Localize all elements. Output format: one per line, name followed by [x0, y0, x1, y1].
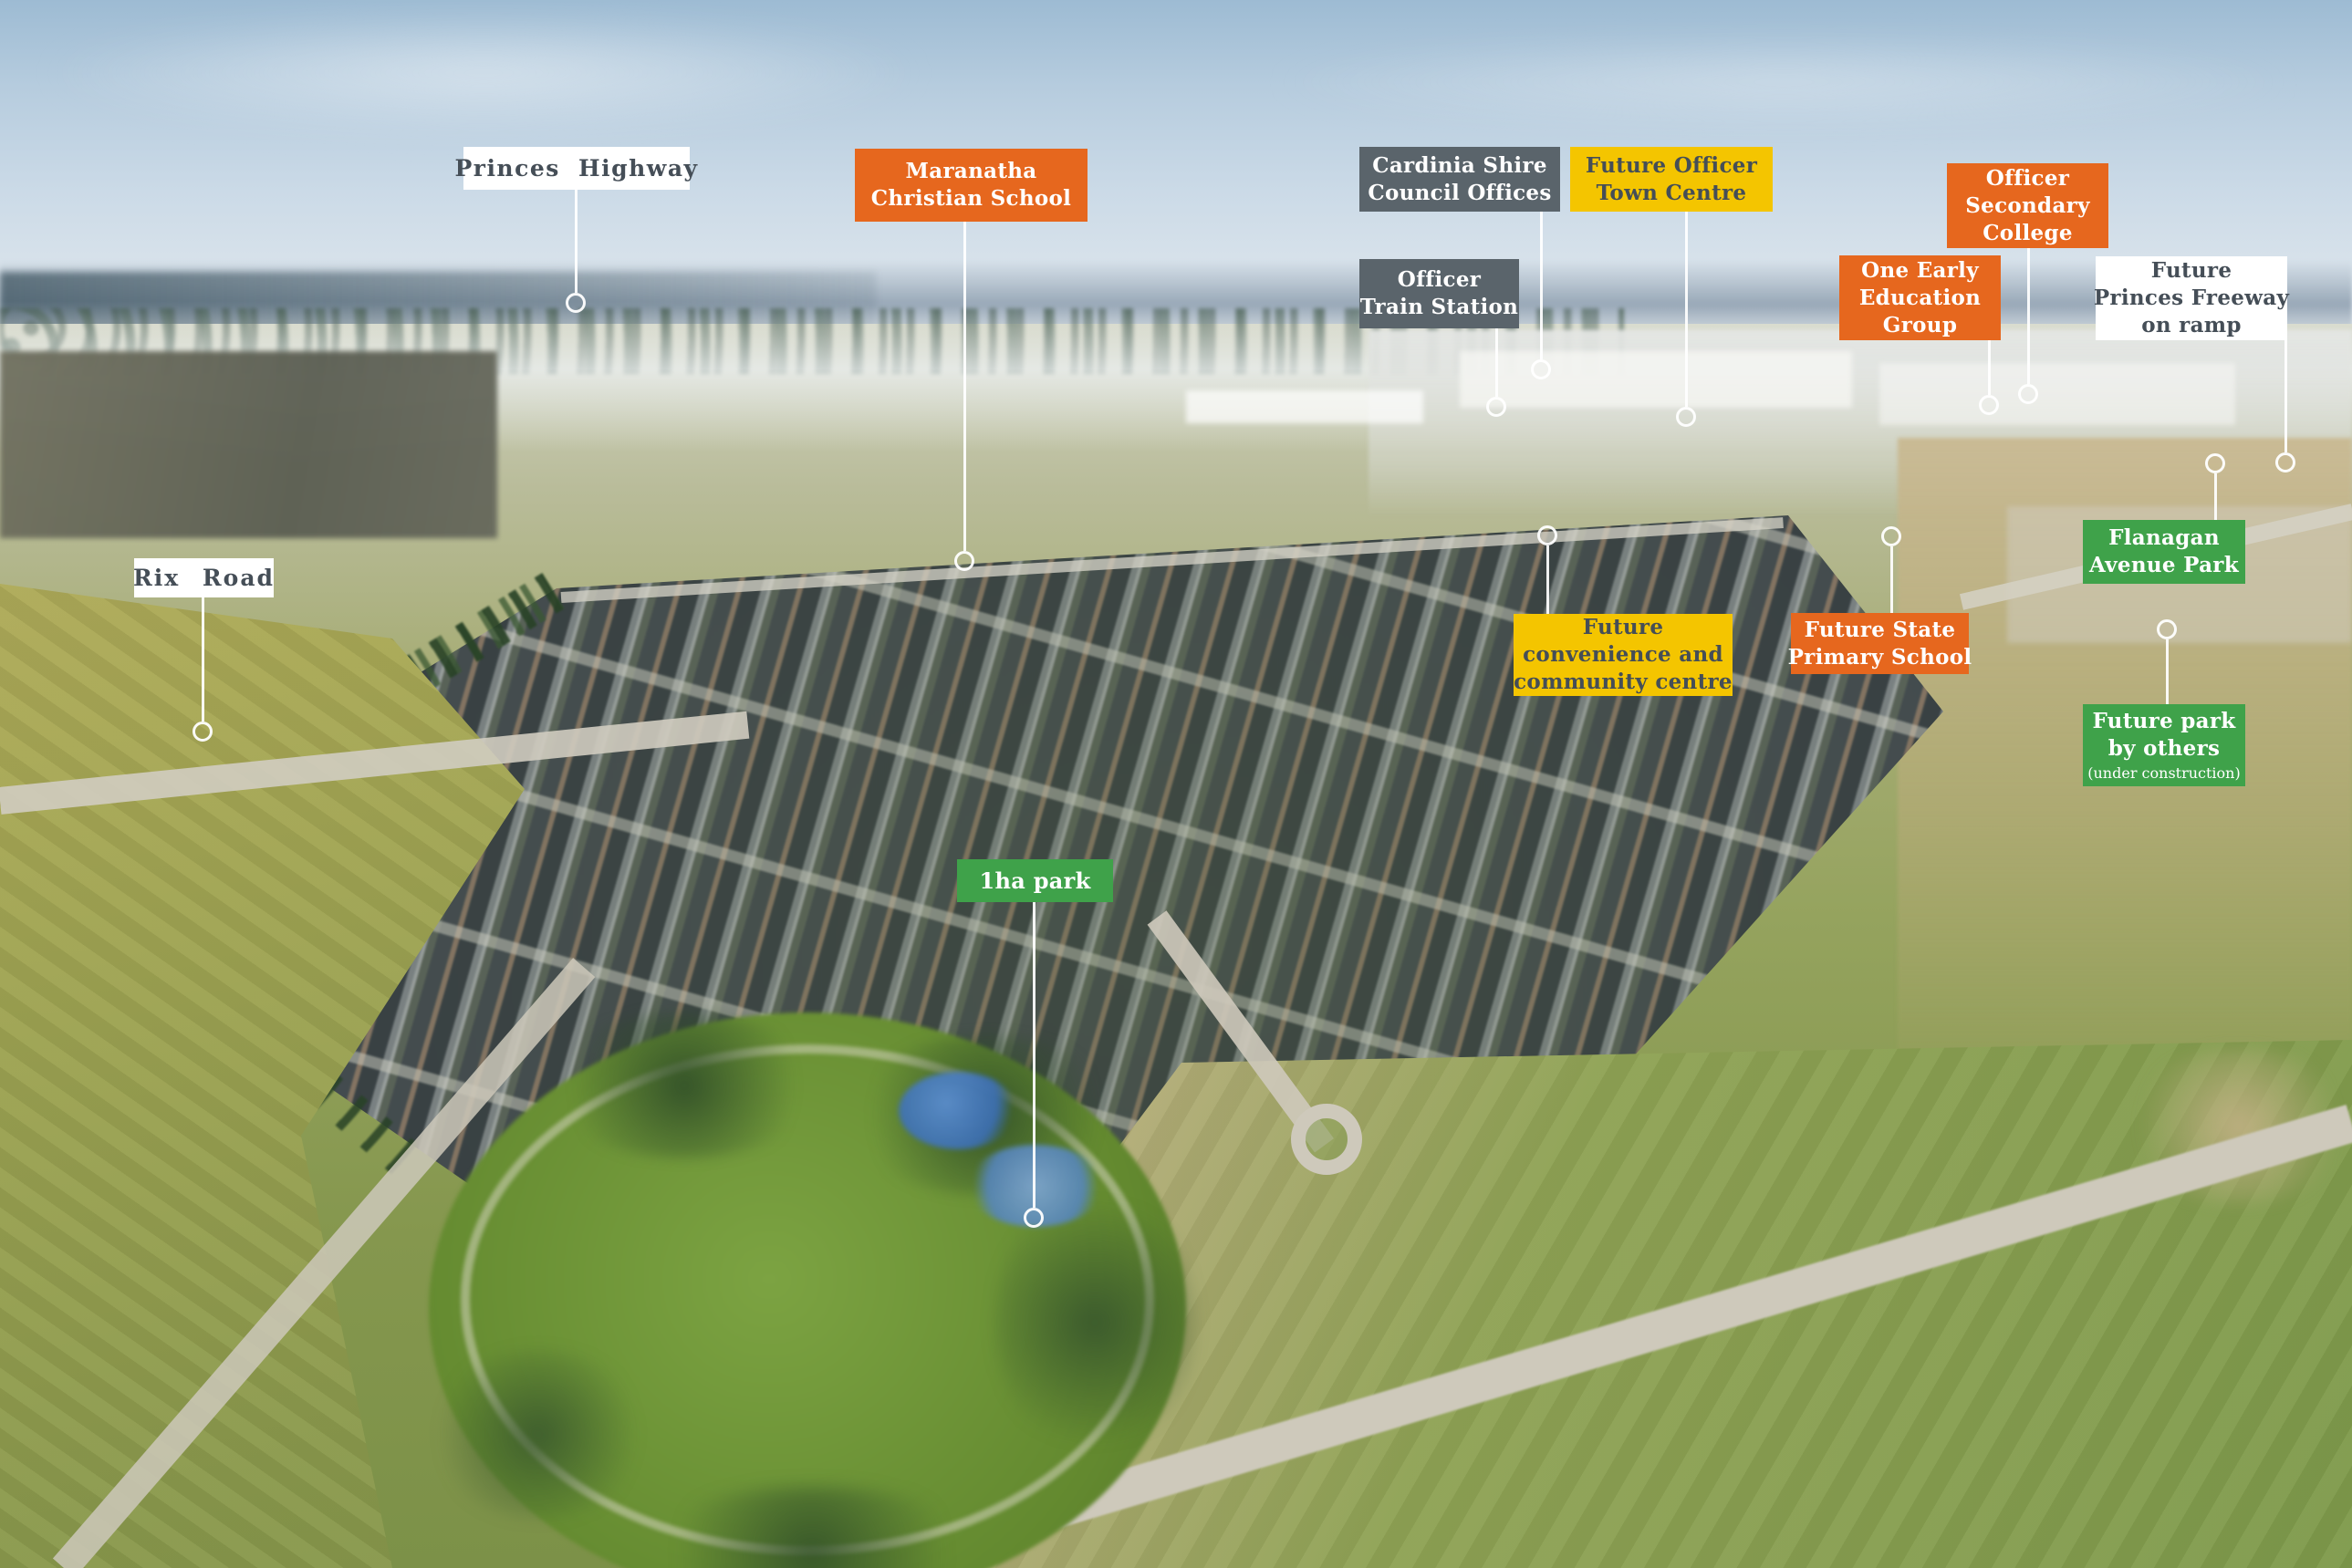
label-text-line: Education [1859, 285, 1981, 312]
label-text-line: Primary School [1788, 644, 1972, 671]
label-text-line: community centre [1514, 669, 1733, 696]
leader-circle-future-officer-town-centre [1676, 407, 1696, 427]
label-text-line: Flanagan [2108, 524, 2220, 552]
leader-line-1ha-park [1033, 902, 1036, 1208]
roundabout [1291, 1104, 1362, 1175]
leader-line-flanagan-avenue-park [2214, 473, 2217, 520]
label-text-line: Town Centre [1597, 180, 1747, 207]
label-text-line: Princes Freeway [2094, 285, 2289, 312]
label-future-state-primary-school: Future StatePrimary School [1791, 613, 1969, 674]
label-text-line: Princes Highway [454, 155, 698, 182]
playground-main [899, 1072, 1017, 1149]
cloud-wisp-right [1259, 32, 2308, 132]
label-princes-highway: Princes Highway [463, 147, 690, 190]
label-text-line: Maranatha [906, 158, 1037, 185]
leader-line-maranatha-christian-school [963, 222, 966, 551]
label-text-line: Future Officer [1586, 152, 1757, 180]
cloud-wisp-left [36, 9, 931, 137]
label-text-line: Future State [1805, 617, 1956, 644]
leader-line-future-convenience-and-community-centre [1546, 545, 1549, 614]
label-future-park-by-others: Future parkby others(under construction) [2083, 704, 2245, 786]
label-text-line: Rix Road [133, 565, 275, 592]
college-buildings [1879, 363, 2235, 425]
leader-circle-officer-secondary-college [2018, 384, 2038, 404]
label-text-line: on ramp [2141, 312, 2242, 339]
leader-line-future-park-by-others [2166, 639, 2169, 704]
label-one-early-education-group: One EarlyEducationGroup [1839, 255, 2001, 340]
label-1ha-park: 1ha park [957, 859, 1113, 902]
leader-circle-officer-train-station [1486, 397, 1506, 417]
label-text-line: College [1983, 220, 2073, 247]
leader-line-cardinia-shire-council-offices [1540, 212, 1543, 359]
label-text-line: Christian School [871, 185, 1071, 213]
leader-circle-flanagan-avenue-park [2205, 453, 2225, 473]
label-text-line: Council Offices [1368, 180, 1551, 207]
leader-circle-one-early-education-group [1979, 395, 1999, 415]
leader-circle-maranatha-christian-school [954, 551, 974, 571]
park-trees-north-west [547, 1012, 821, 1158]
label-future-officer-town-centre: Future OfficerTown Centre [1570, 147, 1773, 212]
label-text-line: Officer [1398, 266, 1481, 294]
leader-line-rix-road [202, 597, 204, 722]
leader-circle-future-state-primary-school [1881, 526, 1901, 546]
leader-circle-future-convenience-and-community-centre [1537, 525, 1557, 545]
label-text-line: Cardinia Shire [1372, 152, 1547, 180]
label-officer-train-station: OfficerTrain Station [1359, 259, 1519, 328]
existing-suburb-left [0, 351, 497, 538]
label-text-line: convenience and [1523, 641, 1723, 669]
label-text-line: Officer [1986, 165, 2069, 192]
park-trees-east [994, 1186, 1195, 1459]
leader-line-one-early-education-group [1988, 340, 1991, 395]
label-officer-secondary-college: OfficerSecondaryCollege [1947, 163, 2108, 248]
label-rix-road: Rix Road [134, 558, 274, 597]
label-maranatha-christian-school: MaranathaChristian School [855, 149, 1088, 222]
leader-line-future-officer-town-centre [1685, 212, 1688, 407]
label-text-line: Avenue Park [2089, 552, 2239, 579]
label-text-line: Secondary [1965, 192, 2089, 220]
label-text-line: Future [2151, 257, 2232, 285]
leader-circle-future-park-by-others [2157, 619, 2177, 639]
label-cardinia-shire-council-offices: Cardinia ShireCouncil Offices [1359, 147, 1560, 212]
leader-line-princes-highway [575, 190, 578, 293]
leader-circle-1ha-park [1024, 1208, 1044, 1228]
leader-line-officer-train-station [1495, 328, 1498, 397]
label-future-princes-freeway-on-ramp: FuturePrinces Freewayon ramp [2096, 256, 2287, 340]
leader-circle-rix-road [193, 722, 213, 742]
label-flanagan-avenue-park: FlanaganAvenue Park [2083, 520, 2245, 584]
label-future-convenience-and-community-centre: Futureconvenience andcommunity centre [1514, 614, 1733, 696]
label-subtext: (under construction) [2087, 764, 2240, 783]
leader-circle-future-princes-freeway-on-ramp [2275, 452, 2295, 472]
label-text-line: Train Station [1360, 294, 1518, 321]
label-text-line: by others [2108, 735, 2221, 763]
leader-circle-princes-highway [566, 293, 586, 313]
label-text-line: Group [1883, 312, 1957, 339]
leader-line-officer-secondary-college [2027, 248, 2030, 384]
label-text-line: Future park [2092, 708, 2235, 735]
label-text-line: 1ha park [979, 867, 1090, 895]
park-trees-south-west [429, 1350, 648, 1519]
leader-line-future-princes-freeway-on-ramp [2284, 340, 2287, 452]
label-text-line: Future [1583, 614, 1664, 641]
label-text-line: One Early [1861, 257, 1979, 285]
train-station-buildings [1186, 390, 1423, 423]
council-office-buildings [1460, 351, 1852, 408]
aerial-masterplan: Princes HighwayMaranathaChristian School… [0, 0, 2352, 1568]
leader-line-future-state-primary-school [1890, 546, 1893, 613]
leader-circle-cardinia-shire-council-offices [1531, 359, 1551, 379]
